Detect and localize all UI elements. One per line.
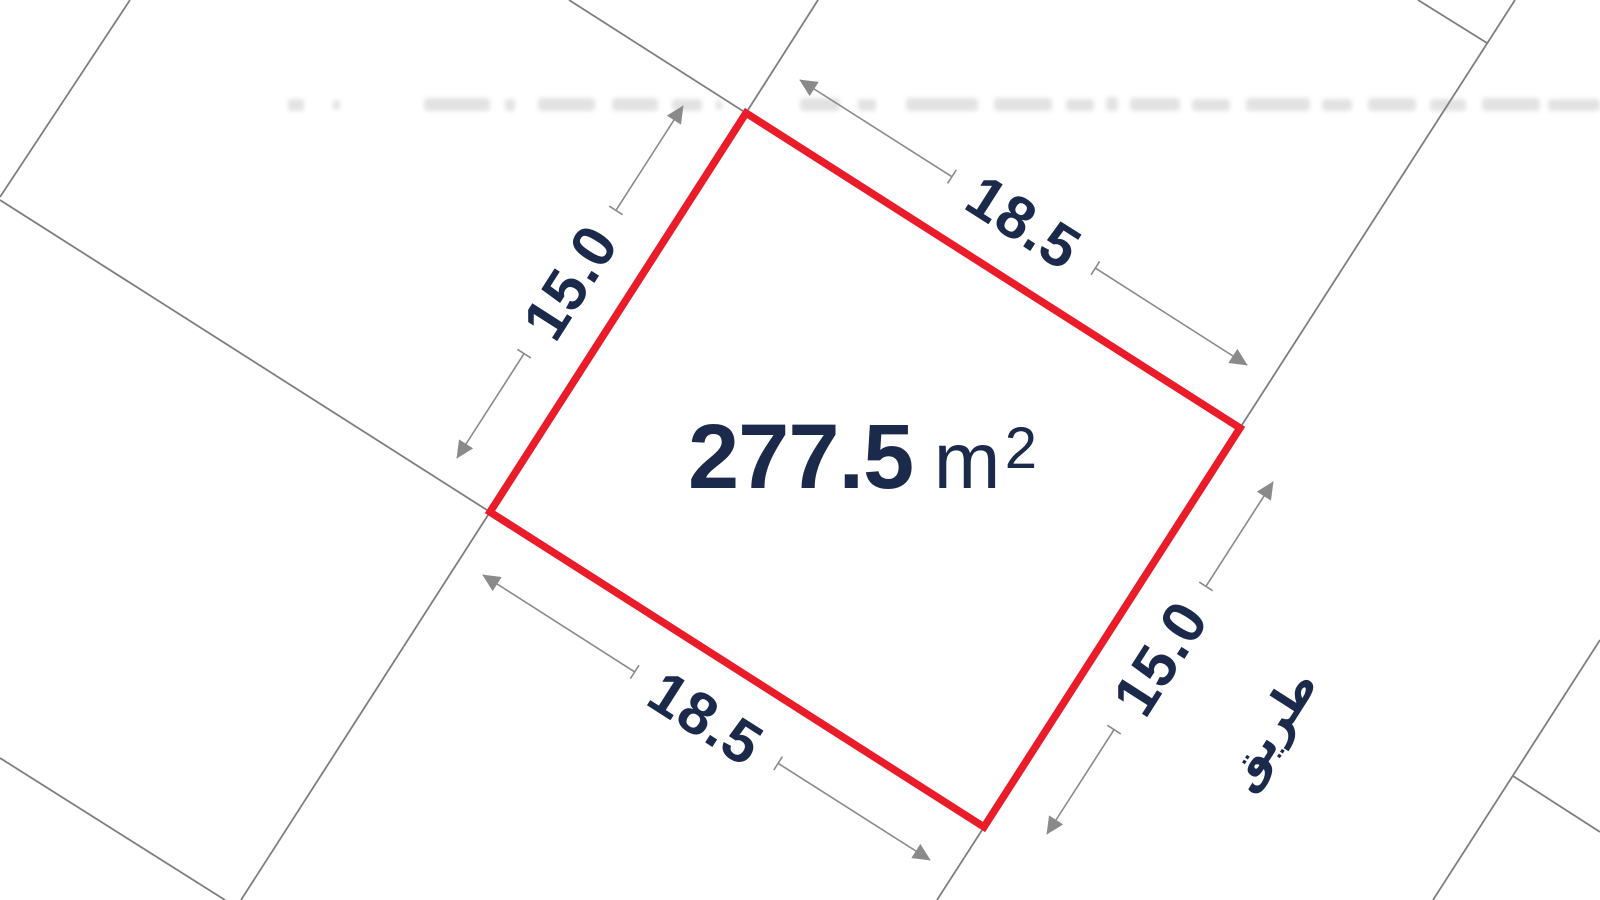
- parcel-line: [0, 0, 130, 197]
- dimension-tick: [1091, 261, 1100, 274]
- dimension-label-right: 15.0: [1100, 589, 1222, 727]
- dimension-tick: [1199, 582, 1212, 591]
- parcel-line: [1418, 0, 1487, 43]
- parcel-line: [241, 512, 490, 900]
- dimension-line: [616, 106, 683, 210]
- dimension-label-left: 15.0: [510, 213, 632, 351]
- dimension-tick: [609, 206, 622, 215]
- dimension-line: [457, 354, 524, 458]
- plot-area-value: 277.5: [688, 406, 913, 508]
- dimension-line: [1206, 482, 1273, 586]
- parcel-line: [569, 0, 746, 113]
- road-label: طريق: [1212, 660, 1328, 799]
- parcel-line: [1240, 0, 1515, 428]
- dimension-tick: [517, 349, 530, 358]
- plot-area-label: 277.5 m 2: [688, 406, 1037, 508]
- parcel-line: [0, 758, 225, 900]
- cadastral-plot-diagram: 18.5 15.0 15.0 18.5 277.5 m 2 طريق: [0, 0, 1600, 900]
- parcel-line: [937, 827, 984, 900]
- plot-area-unit: m: [934, 416, 1001, 505]
- dimension-tick: [1107, 725, 1120, 734]
- redacted-text-band: [288, 97, 1600, 111]
- dimension-line: [1047, 730, 1114, 834]
- dimension-label-top: 18.5: [955, 162, 1093, 283]
- dimension-tick: [774, 757, 783, 770]
- plot-area-superscript: 2: [1005, 416, 1037, 481]
- dimension-tick: [630, 665, 639, 678]
- parcel-line: [746, 0, 818, 113]
- parcel-line: [1513, 776, 1600, 832]
- dimension-tick: [948, 170, 957, 183]
- parcel-line: [1433, 640, 1600, 900]
- parcel-line: [0, 200, 490, 512]
- plot-map-canvas: 18.5 15.0 15.0 18.5 277.5 m 2 طريق: [0, 0, 1600, 900]
